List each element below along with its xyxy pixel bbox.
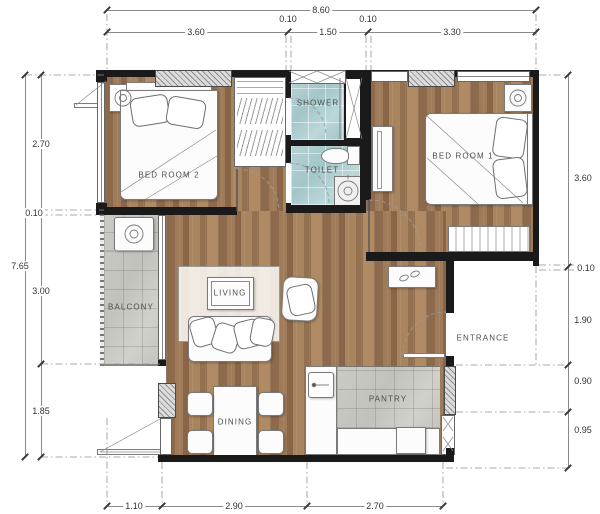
window-leaf-bottom-left (97, 449, 161, 455)
dim-right-4: 0.90 (572, 376, 594, 386)
kitchen-appliance (308, 372, 334, 398)
wardrobe-hang-1 (237, 98, 283, 124)
living-label: LIVING (214, 289, 247, 298)
dim-left-2: 0.10 (23, 208, 45, 218)
entrance-label: ENTRANCE (457, 334, 510, 343)
bath-window (288, 70, 346, 84)
bed2-pillow-left (129, 93, 171, 128)
shoe-cabinet (388, 266, 436, 288)
dim-right-1: 3.60 (572, 173, 594, 183)
dining-chair-3 (258, 392, 284, 416)
bench-bedroom1 (448, 226, 530, 252)
sink-vanity (334, 176, 362, 206)
sill-hall (371, 71, 408, 82)
wall-entry-corner (446, 448, 454, 462)
wall-bedroom1-south (366, 252, 539, 261)
toilet-bowl (321, 148, 349, 164)
dim-top-4: 0.10 (357, 14, 379, 24)
lintel-bedroom2 (155, 70, 232, 87)
dim-right-2: 0.10 (575, 263, 597, 273)
bedroom2-label: BED ROOM 2 (138, 171, 199, 180)
dim-bottom-2: 2.90 (223, 501, 245, 511)
dim-right-3: 1.90 (572, 315, 594, 325)
wardrobe-shelf (237, 80, 283, 94)
window-column-left (160, 418, 172, 455)
cabinet-hall (372, 126, 393, 192)
dining-chair-2 (187, 430, 213, 454)
dim-right-5: 0.95 (572, 425, 594, 435)
wall-bedroom2-south (100, 207, 237, 215)
dim-left-overall: 7.65 (9, 261, 31, 271)
wall-shower-toilet-divider (291, 140, 366, 146)
dim-line-left-segments (41, 75, 42, 457)
dim-left-3: 3.00 (30, 286, 52, 296)
balcony-south-edge (104, 364, 158, 366)
balcony-label: BALCONY (108, 303, 154, 312)
shower-label: SHOWER (297, 99, 340, 108)
lintel-bedroom1 (408, 70, 455, 87)
wall-bath-south (286, 205, 366, 213)
dim-line-bottom (107, 506, 443, 507)
balcony-sliding-door (158, 215, 166, 360)
bedroom1-label: BED ROOM 1 (432, 152, 493, 161)
bedroom2-window (97, 82, 105, 203)
dim-top-3: 1.50 (317, 27, 339, 37)
toilet-label: TOILET (305, 166, 339, 175)
bed1-pillow-bottom (492, 156, 529, 200)
wall-bedroom1-west (366, 70, 371, 200)
wall-bedroom2-east (286, 70, 291, 98)
shower-floor (291, 77, 344, 140)
washing-machine (114, 217, 154, 251)
balcony-alcove-line (104, 250, 158, 251)
dining-label: DINING (218, 418, 253, 427)
wardrobe-hang-2 (237, 130, 283, 156)
entry-door-leaf (403, 353, 445, 358)
wall-left-top-corner (96, 70, 107, 82)
dim-top-5: 3.30 (441, 27, 463, 37)
dim-bottom-3: 2.70 (364, 501, 386, 511)
bed1-pillow-top (491, 116, 528, 160)
dim-bottom-1: 1.10 (123, 501, 145, 511)
wall-right (533, 70, 539, 266)
dim-top-1: 3.60 (185, 27, 207, 37)
bedroom1-window (457, 71, 530, 82)
wall-entry-column-top (446, 261, 454, 313)
pantry-appliance (396, 427, 426, 454)
dim-left-4: 1.85 (30, 406, 52, 416)
wall-bottom (158, 455, 446, 462)
floor-plan: BED ROOM 2 SHOWER TOILET BED ROOM 1 BALC… (0, 0, 600, 514)
pillar-entry (444, 366, 456, 415)
dim-top-2: 0.10 (277, 14, 299, 24)
pillar-balcony (158, 383, 176, 418)
wall-balcony-door-stub (158, 360, 166, 366)
ac-unit-bedroom1 (504, 84, 532, 112)
dim-top-overall: 8.60 (310, 5, 332, 15)
pantry-label: PANTRY (369, 395, 407, 404)
dining-chair-1 (187, 392, 213, 416)
dining-chair-4 (258, 430, 284, 454)
balcony-rail (100, 215, 104, 366)
exterior-bottom-left (96, 366, 166, 462)
dim-left-1: 2.70 (30, 139, 52, 149)
